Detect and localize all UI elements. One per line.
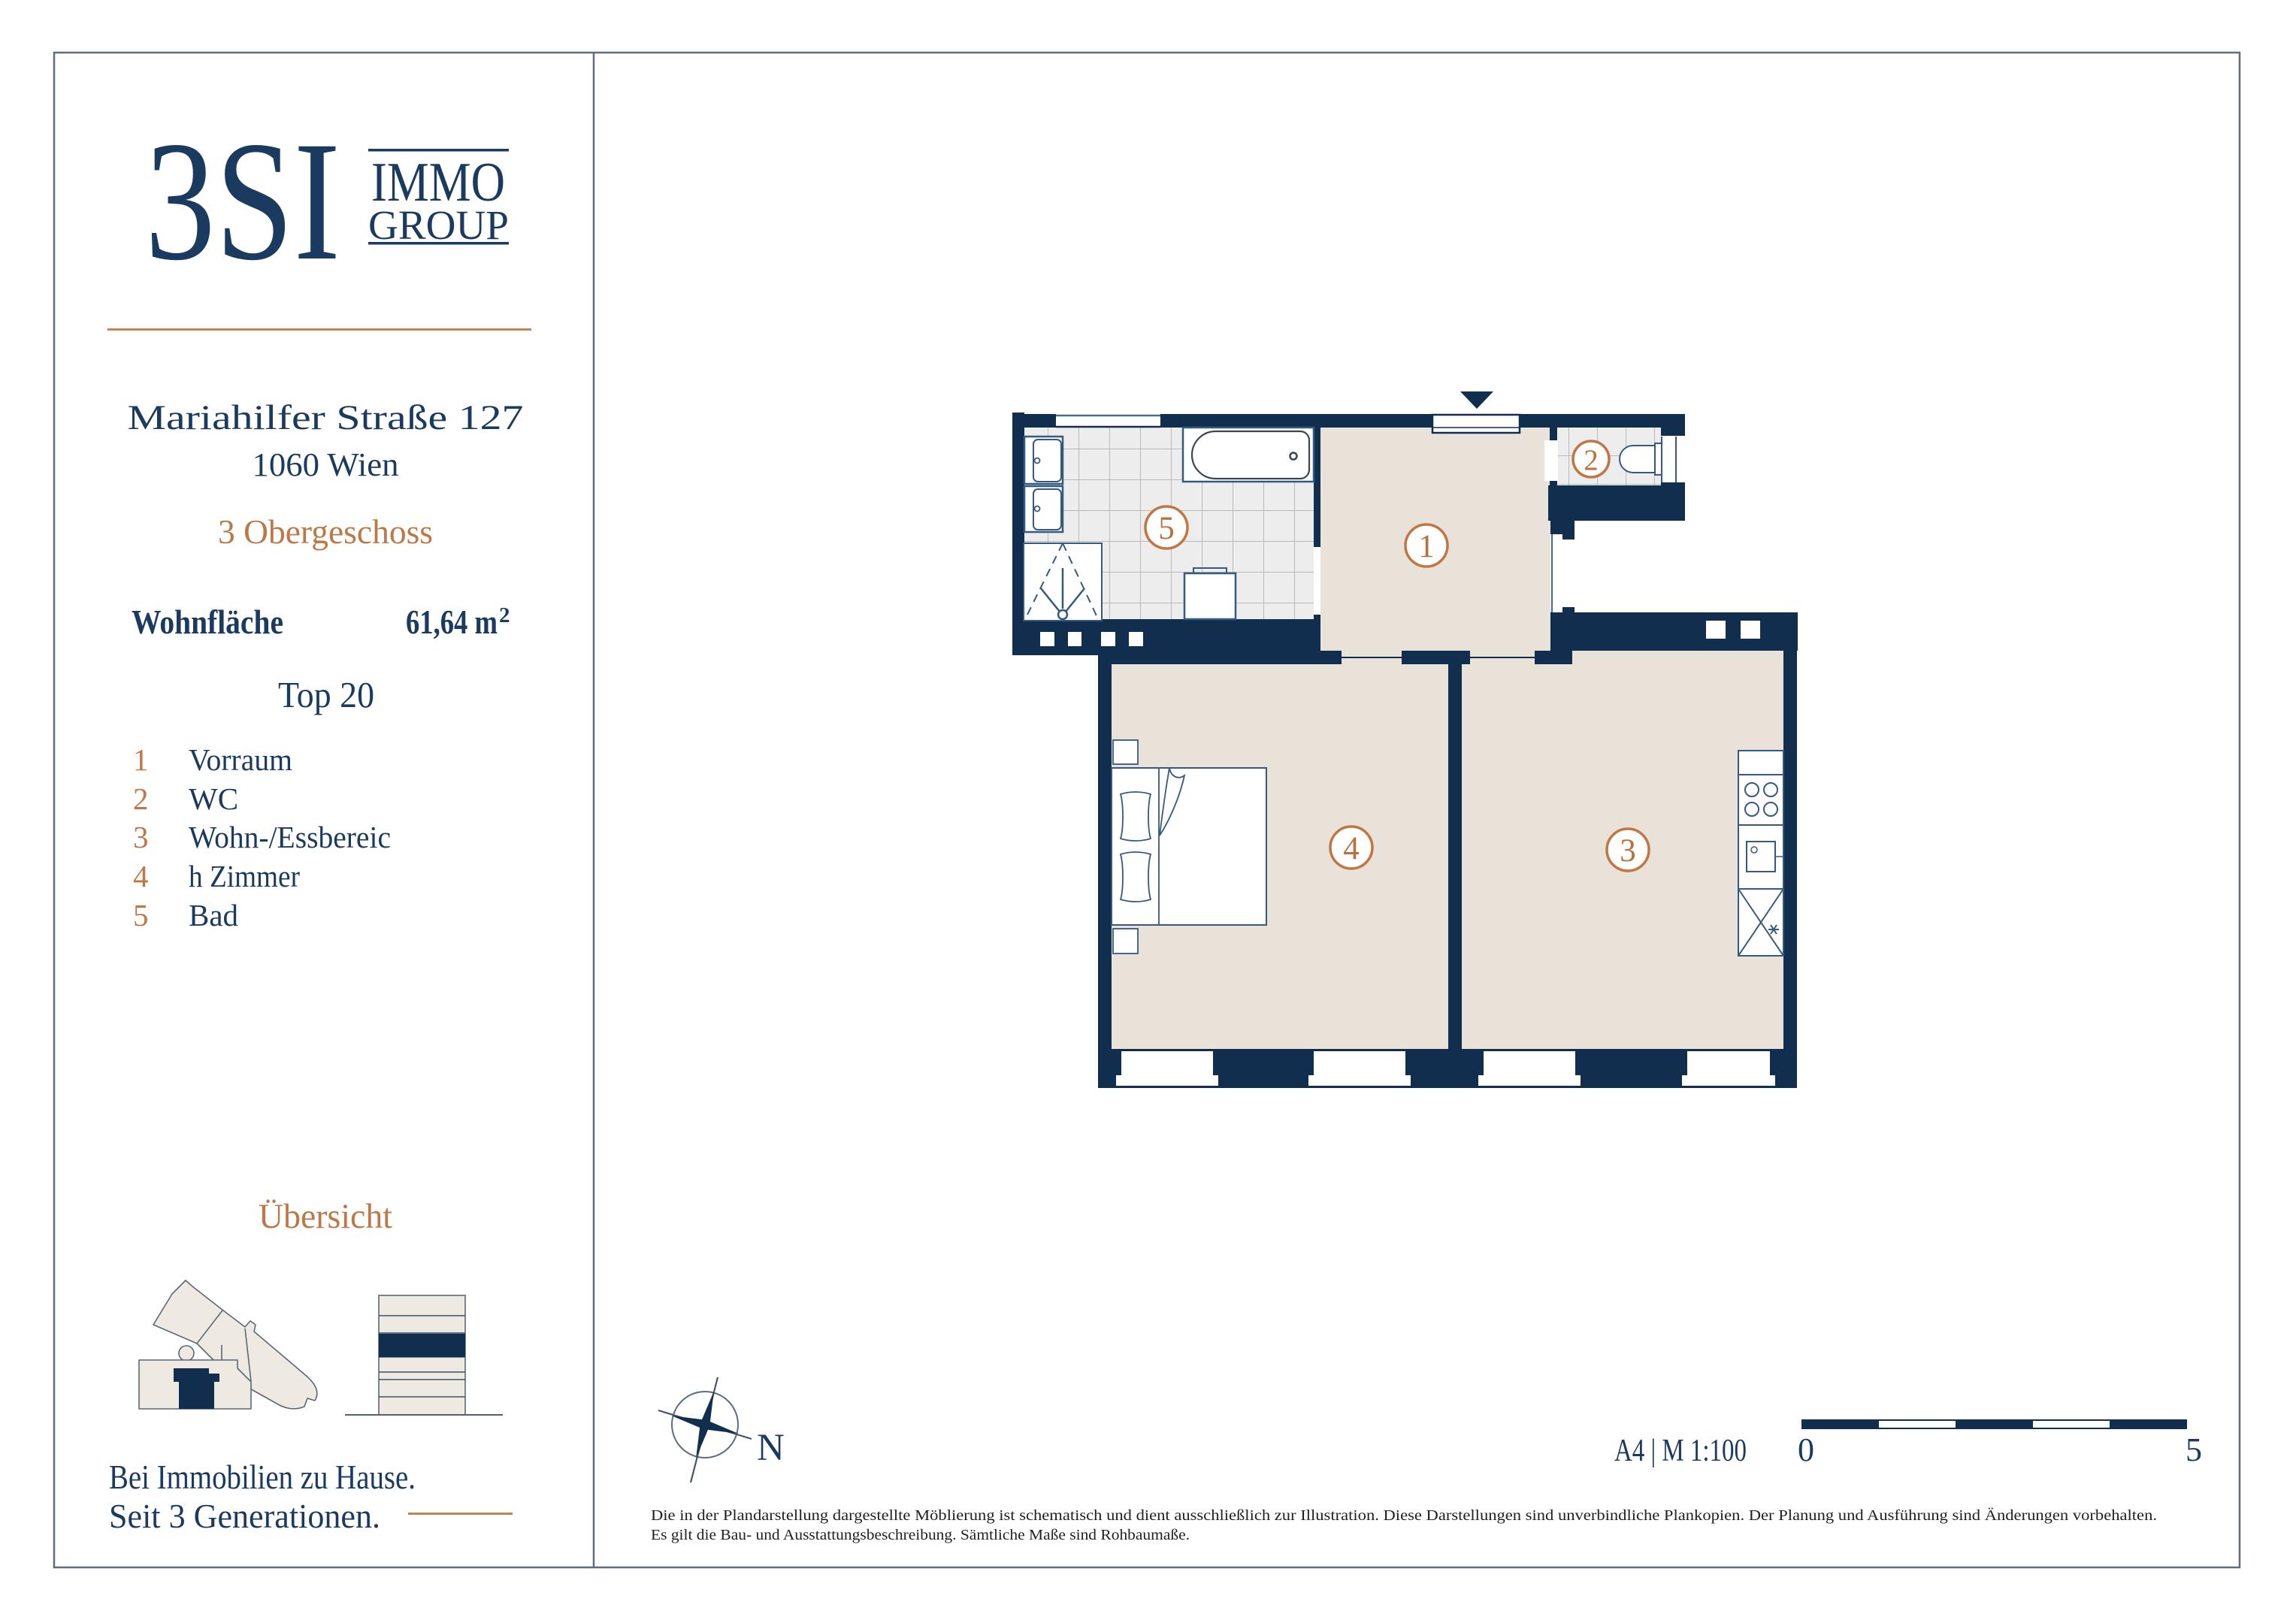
svg-text:GROUP: GROUP: [368, 202, 509, 248]
svg-text:Top 20: Top 20: [278, 674, 374, 715]
svg-text:Bad: Bad: [189, 898, 238, 932]
svg-text:1: 1: [1418, 529, 1435, 564]
svg-text:3 Obergeschoss: 3 Obergeschoss: [218, 513, 433, 551]
svg-text:Wohn-/Essbereic: Wohn-/Essbereic: [189, 820, 391, 854]
svg-text:A4 | M 1:100: A4 | M 1:100: [1614, 1434, 1747, 1468]
svg-text:3: 3: [1620, 833, 1636, 869]
svg-text:2: 2: [133, 781, 149, 816]
svg-text:Wohnfläche: Wohnfläche: [132, 603, 283, 641]
svg-text:0: 0: [1798, 1431, 1814, 1468]
svg-text:5: 5: [133, 898, 149, 932]
svg-text:5: 5: [1158, 511, 1175, 546]
svg-text:3: 3: [133, 820, 149, 854]
svg-text:5: 5: [2186, 1431, 2202, 1468]
svg-text:WC: WC: [189, 781, 238, 816]
svg-text:4: 4: [133, 859, 149, 893]
svg-text:Mariahilfer Straße 127: Mariahilfer Straße 127: [128, 398, 524, 437]
svg-text:Seit 3 Generationen.: Seit 3 Generationen.: [109, 1497, 380, 1535]
svg-text:4: 4: [1343, 831, 1360, 866]
svg-text:Vorraum: Vorraum: [189, 742, 292, 777]
svg-text:3SI: 3SI: [145, 107, 340, 296]
svg-text:Übersicht: Übersicht: [259, 1197, 392, 1236]
svg-text:N: N: [757, 1427, 785, 1469]
svg-text:Es gilt die Bau- und Ausstattu: Es gilt die Bau- und Ausstattungsbeschre…: [651, 1527, 1190, 1543]
svg-text:61,64 m: 61,64 m: [406, 603, 498, 641]
svg-text:Bei Immobilien zu Hause.: Bei Immobilien zu Hause.: [109, 1458, 416, 1496]
svg-text:2: 2: [499, 603, 510, 627]
svg-text:1060 Wien: 1060 Wien: [253, 446, 399, 483]
svg-text:2: 2: [1584, 444, 1599, 476]
svg-text:h Zimmer: h Zimmer: [189, 859, 300, 893]
svg-text:1: 1: [133, 742, 149, 777]
svg-text:Die in der Plandarstellung dar: Die in der Plandarstellung dargestellte …: [651, 1507, 2157, 1524]
